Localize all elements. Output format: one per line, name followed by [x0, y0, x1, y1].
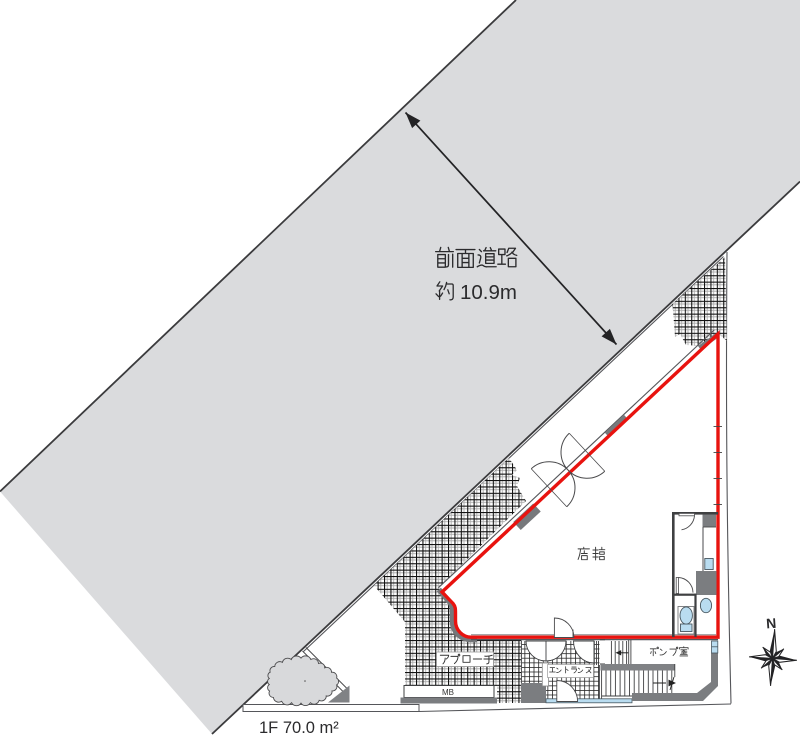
svg-text:MB: MB	[442, 688, 454, 697]
svg-text:1F 70.0 m²: 1F 70.0 m²	[259, 719, 339, 737]
svg-text:10.9m: 10.9m	[460, 281, 517, 304]
svg-text:N: N	[766, 615, 777, 632]
